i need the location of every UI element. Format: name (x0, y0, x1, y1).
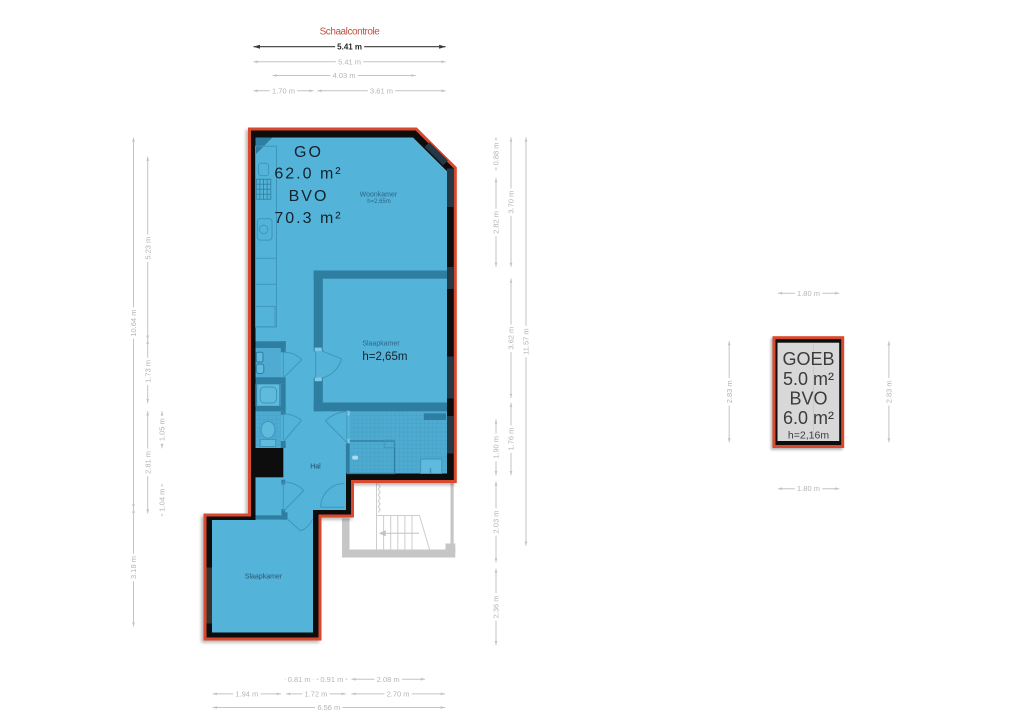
svg-text:2.03 m: 2.03 m (492, 511, 501, 534)
svg-text:Slaapkamer: Slaapkamer (362, 341, 400, 348)
svg-text:10.64 m: 10.64 m (129, 310, 138, 337)
svg-text:5.0 m²: 5.0 m² (783, 369, 834, 389)
svg-text:6.56 m: 6.56 m (317, 703, 340, 712)
svg-text:3.62 m: 3.62 m (507, 327, 516, 350)
svg-text:1.80 m: 1.80 m (797, 484, 820, 493)
svg-text:3.70 m: 3.70 m (507, 191, 516, 214)
svg-text:1.04 m: 1.04 m (158, 489, 167, 512)
svg-text:3.61 m: 3.61 m (370, 86, 393, 95)
svg-text:1.76 m: 1.76 m (507, 428, 516, 451)
svg-text:5.41 m: 5.41 m (337, 42, 362, 51)
svg-text:h=2,65m: h=2,65m (367, 199, 391, 205)
svg-text:h=2,16m: h=2,16m (788, 430, 829, 442)
svg-text:BVO: BVO (289, 188, 329, 205)
svg-text:1.94 m: 1.94 m (235, 689, 258, 698)
svg-text:0.91 m: 0.91 m (320, 675, 343, 684)
svg-text:2.36 m: 2.36 m (492, 595, 501, 618)
svg-text:2.70 m: 2.70 m (387, 689, 410, 698)
svg-text:0.88 m: 0.88 m (492, 142, 501, 165)
svg-text:2.83 m: 2.83 m (725, 380, 734, 403)
svg-text:70.3 m²: 70.3 m² (274, 210, 342, 227)
svg-text:3.18 m: 3.18 m (129, 556, 138, 579)
svg-text:Slaapkamer: Slaapkamer (245, 574, 283, 581)
svg-text:1.73 m: 1.73 m (143, 360, 152, 383)
svg-text:2.83 m: 2.83 m (885, 380, 894, 403)
svg-text:4.03 m: 4.03 m (333, 71, 356, 80)
svg-text:5.41 m: 5.41 m (338, 57, 361, 66)
svg-text:h=2,65m: h=2,65m (362, 351, 407, 363)
svg-text:BVO: BVO (789, 389, 827, 409)
svg-text:1.05 m: 1.05 m (158, 418, 167, 441)
svg-text:GO: GO (294, 144, 323, 161)
svg-text:62.0 m²: 62.0 m² (274, 166, 342, 183)
svg-text:2.08 m: 2.08 m (377, 675, 400, 684)
svg-text:1.80 m: 1.80 m (797, 289, 820, 298)
svg-text:Woonkamer: Woonkamer (360, 192, 398, 199)
svg-text:1.70 m: 1.70 m (272, 86, 295, 95)
svg-text:2.82 m: 2.82 m (492, 211, 501, 234)
svg-text:11.57 m: 11.57 m (522, 328, 531, 355)
svg-text:Schaalcontrole: Schaalcontrole (320, 27, 381, 38)
svg-text:1.90 m: 1.90 m (492, 436, 501, 459)
svg-text:5.23 m: 5.23 m (143, 237, 152, 260)
svg-text:GOEB: GOEB (782, 349, 834, 369)
svg-text:2.81 m: 2.81 m (143, 451, 152, 474)
svg-text:Hal: Hal (310, 464, 321, 471)
svg-text:1.72 m: 1.72 m (304, 689, 327, 698)
svg-text:6.0 m²: 6.0 m² (783, 408, 834, 428)
svg-text:0.81 m: 0.81 m (288, 675, 311, 684)
